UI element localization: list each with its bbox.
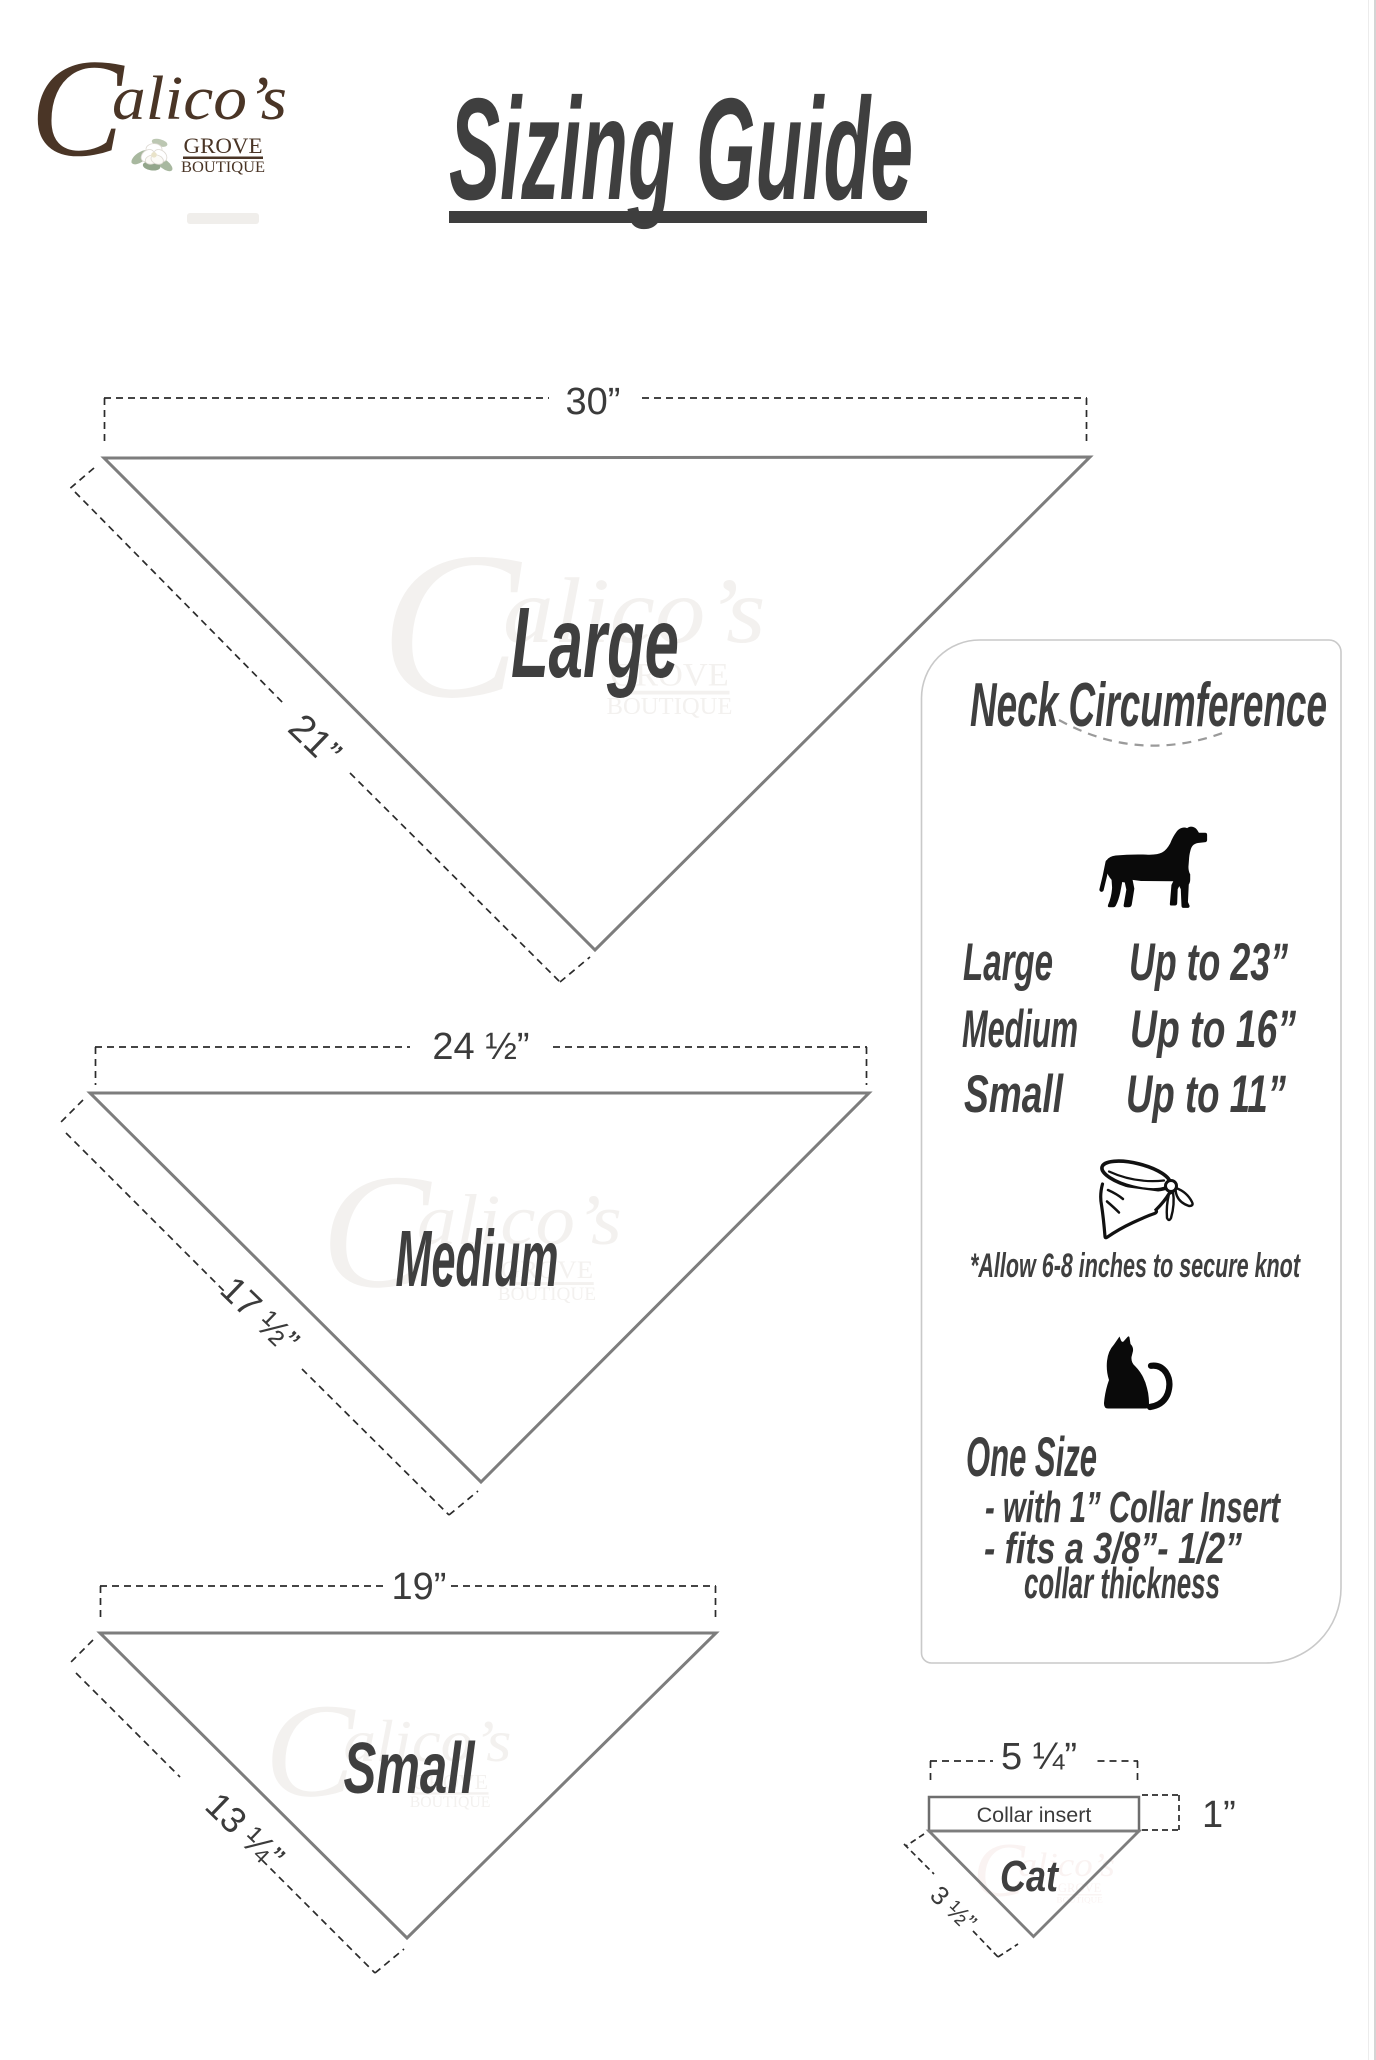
svg-text:Up to 11”: Up to 11” <box>1126 1065 1286 1124</box>
svg-text:collar thickness: collar thickness <box>1024 1559 1220 1608</box>
svg-text:Large: Large <box>511 587 679 699</box>
svg-text:One Size: One Size <box>966 1425 1097 1488</box>
svg-text:Medium: Medium <box>396 1214 559 1303</box>
svg-text:Neck Circumference: Neck Circumference <box>970 671 1327 740</box>
svg-text:*Allow 6-8 inches to secure kn: *Allow 6-8 inches to secure knot <box>970 1247 1301 1285</box>
svg-text:Up to 23”: Up to 23” <box>1129 933 1288 992</box>
svg-text:Sizing Guide: Sizing Guide <box>449 68 913 230</box>
svg-text:24 ½”: 24 ½” <box>432 1026 529 1068</box>
svg-text:Medium: Medium <box>962 1000 1078 1059</box>
svg-text:Up to 16”: Up to 16” <box>1130 1000 1296 1059</box>
svg-text:5 ¼”: 5 ¼” <box>1001 1736 1077 1778</box>
svg-text:BOUTIQUE: BOUTIQUE <box>181 159 265 176</box>
svg-text:Small: Small <box>344 1729 476 1809</box>
svg-text:Collar insert: Collar insert <box>977 1803 1092 1827</box>
svg-text:19”: 19” <box>392 1566 447 1608</box>
svg-text:alico’s: alico’s <box>112 65 287 133</box>
svg-text:30”: 30” <box>566 381 621 423</box>
svg-text:GROVE: GROVE <box>184 133 263 158</box>
svg-text:C: C <box>30 31 125 186</box>
svg-text:Cat: Cat <box>1000 1852 1060 1901</box>
svg-text:Large: Large <box>963 933 1053 992</box>
svg-text:Small: Small <box>964 1065 1064 1124</box>
svg-text:1”: 1” <box>1202 1794 1236 1836</box>
